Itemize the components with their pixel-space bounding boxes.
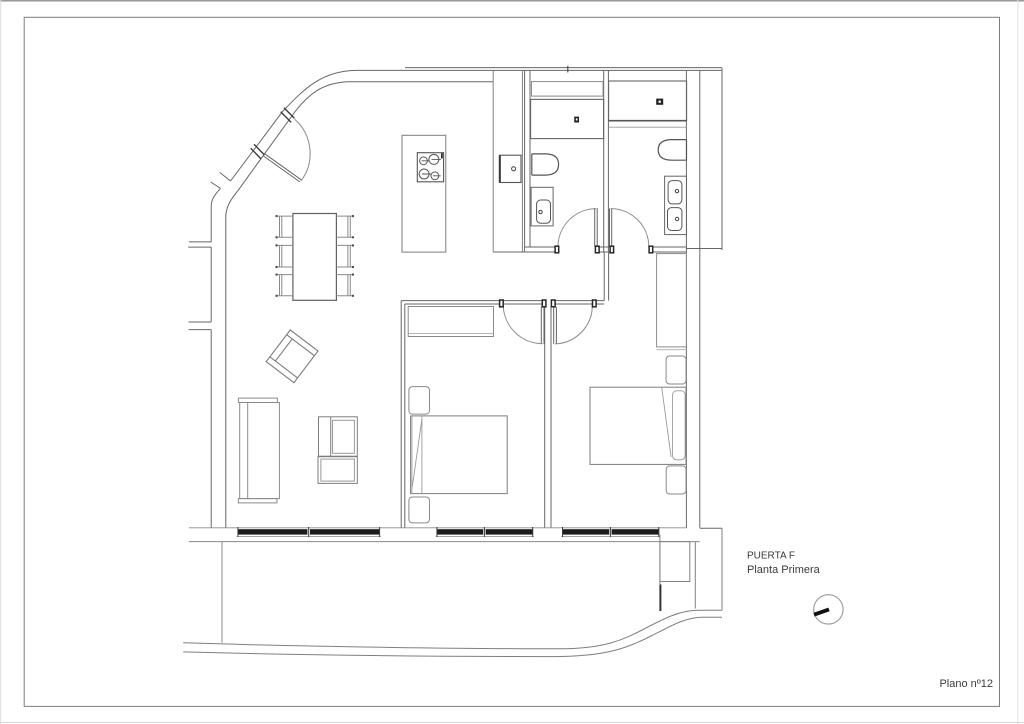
svg-text:Plano nº12: Plano nº12: [939, 678, 993, 690]
svg-text:PUERTA F: PUERTA F: [747, 551, 795, 562]
svg-text:Planta Primera: Planta Primera: [747, 564, 821, 576]
